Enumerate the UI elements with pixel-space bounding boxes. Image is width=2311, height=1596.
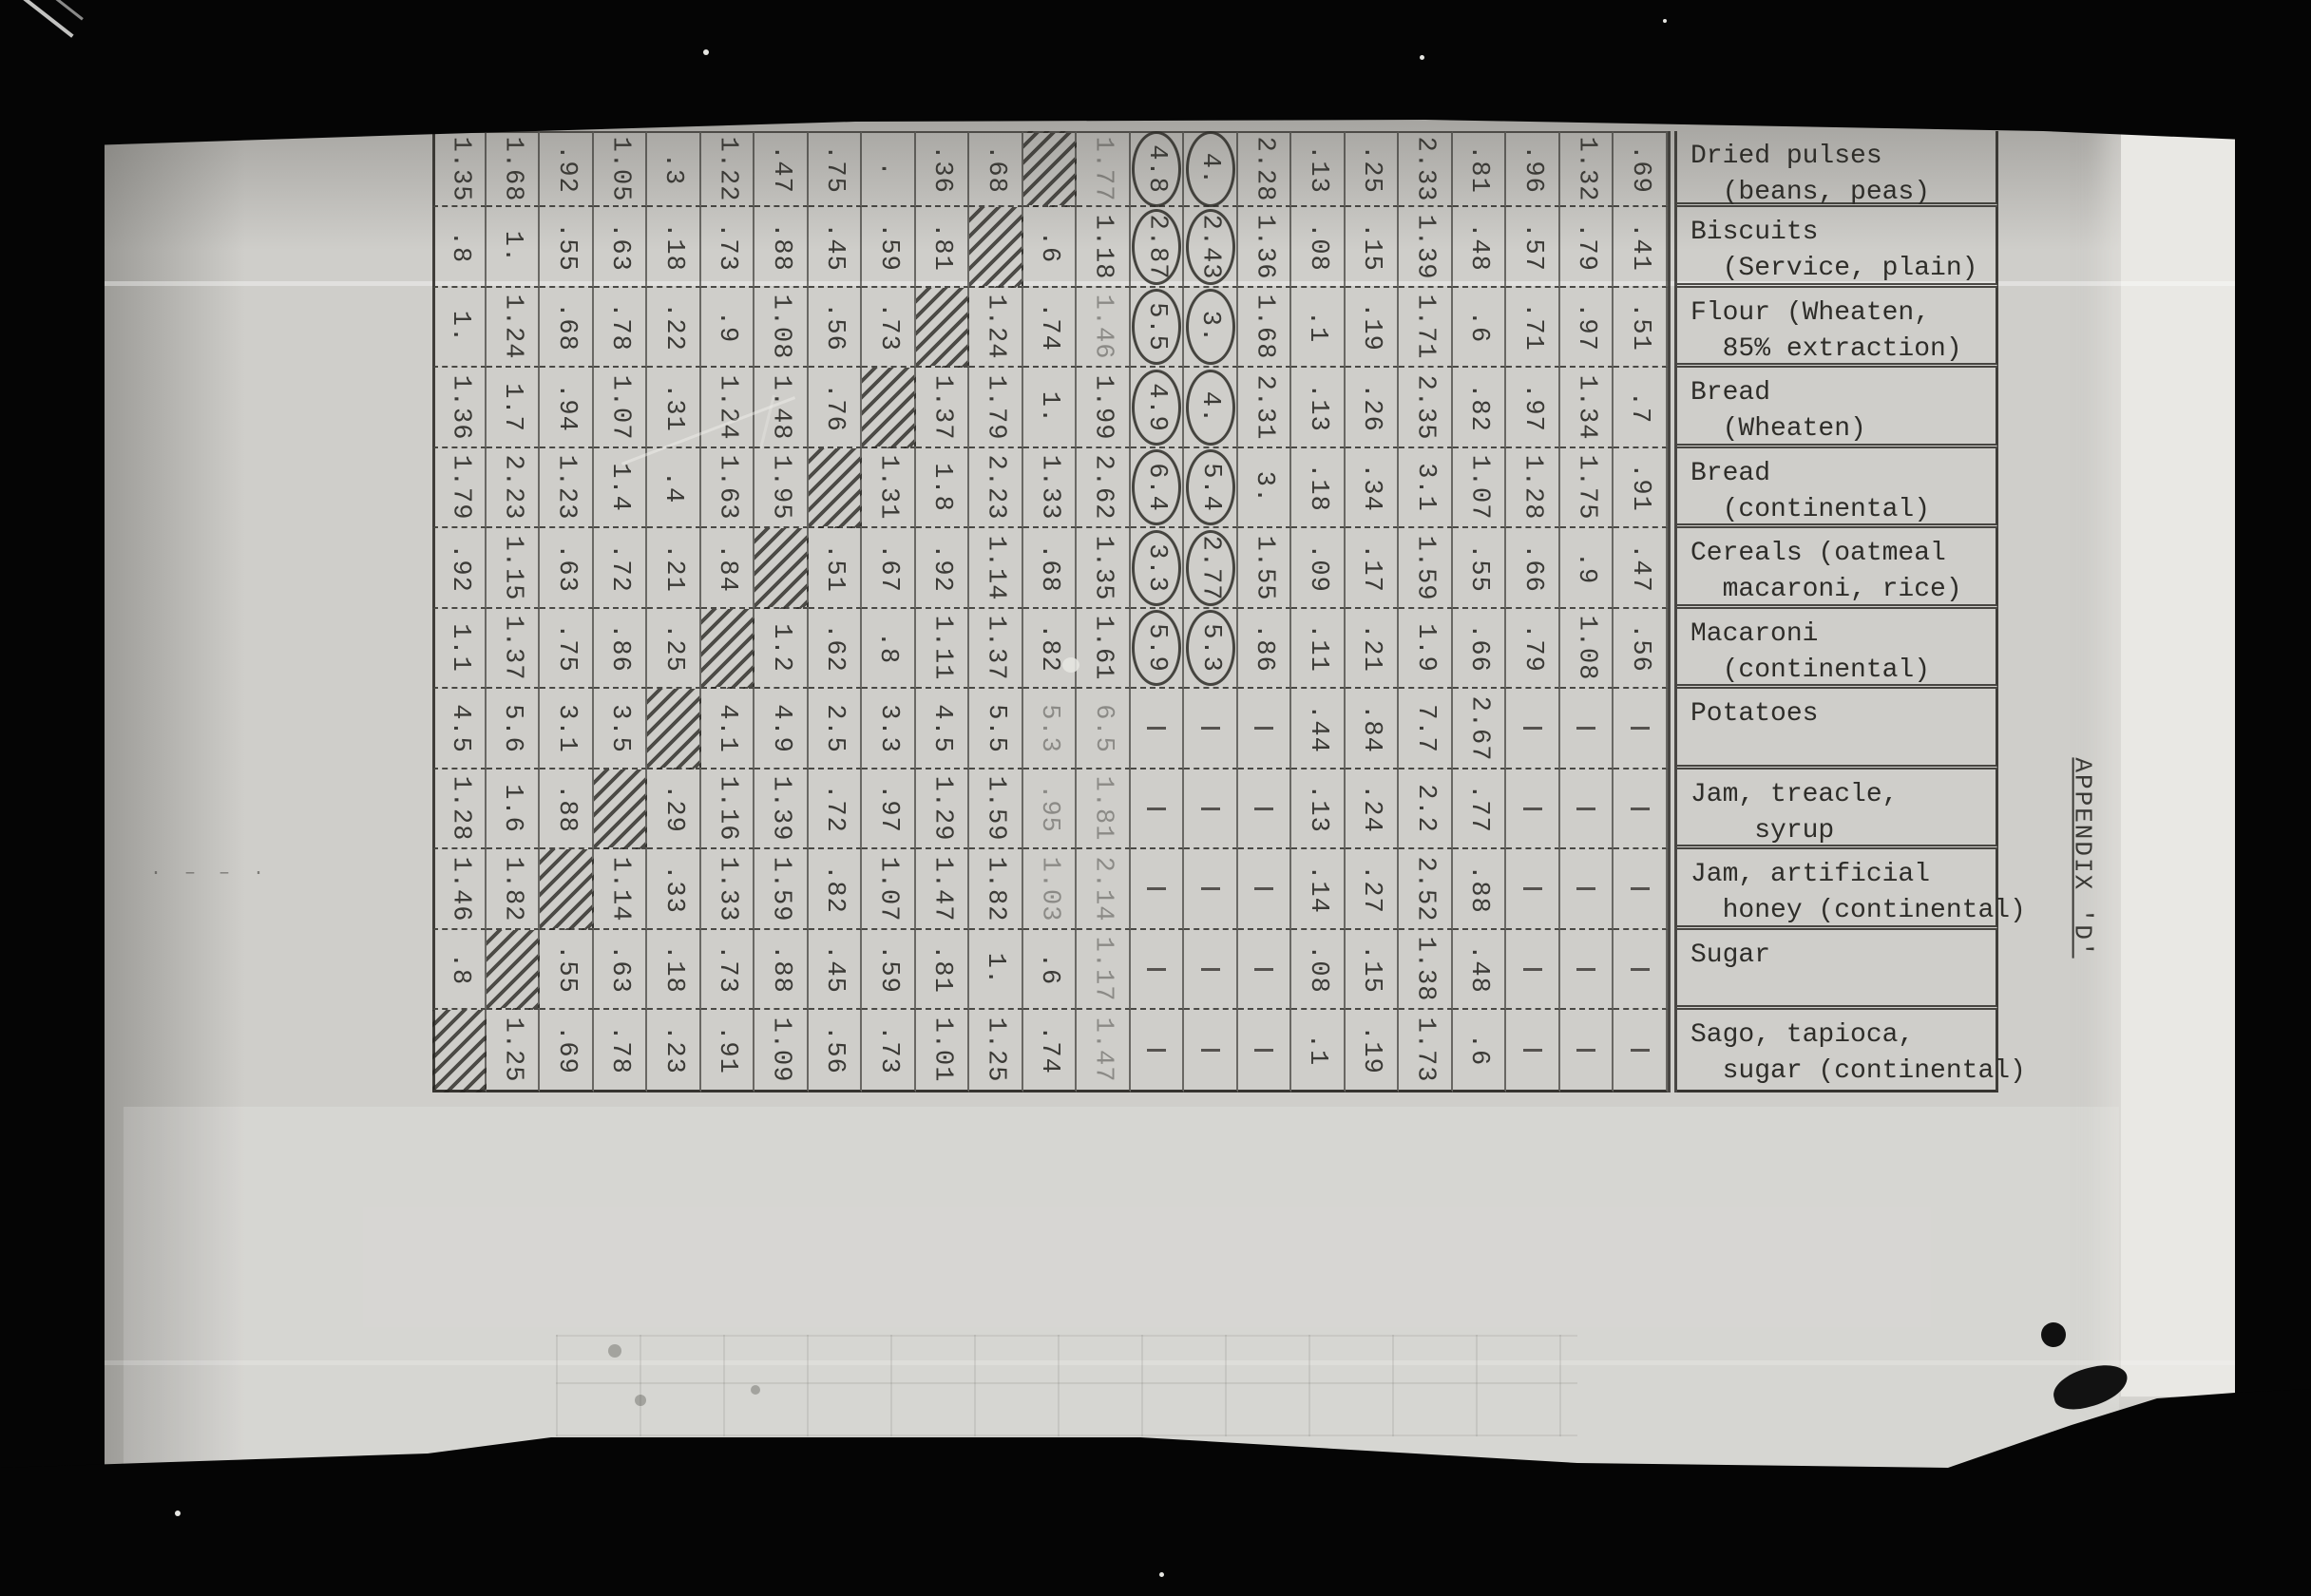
circled-value: 2.43 [1186, 209, 1235, 285]
cell-value: .75 [820, 144, 849, 194]
cell-value: .13 [1303, 383, 1331, 432]
table-cell: .74 [1023, 1010, 1077, 1092]
hatched-cell [862, 368, 916, 448]
cell-value: .48 [1464, 944, 1493, 994]
cell-value: 1. [446, 311, 474, 343]
cell-value: 1.55 [1250, 535, 1278, 600]
table-cell [1614, 849, 1668, 930]
cell-value: 1.2 [766, 623, 794, 673]
table-cell: 1.75 [1560, 448, 1614, 528]
table-cell: .92 [540, 131, 594, 207]
table-cell: .63 [594, 930, 647, 1010]
table-cell: .91 [1614, 448, 1668, 528]
cell-value: .18 [1303, 463, 1331, 512]
cell-value: 2.52 [1411, 856, 1440, 921]
cell-value: 1.99 [1089, 374, 1117, 440]
cell-value: 1.33 [1035, 455, 1063, 521]
table-cell: 1.39 [1399, 207, 1453, 288]
table-cell: 1. [487, 207, 540, 288]
table-cell: 1.33 [701, 849, 754, 930]
dash-mark [1147, 968, 1166, 971]
table-cell: .71 [1506, 288, 1560, 368]
table-cell: .56 [809, 1010, 862, 1092]
cell-value: .92 [551, 144, 580, 194]
cell-value: . [873, 161, 902, 177]
cell-value: .23 [659, 1025, 687, 1074]
row-label: Macaroni (continental) [1677, 609, 1998, 689]
dash-mark [1576, 807, 1595, 810]
table-cell: .24 [1346, 769, 1399, 849]
table-cell: 1.73 [1399, 1010, 1453, 1092]
dash-mark [1201, 968, 1220, 971]
table-cell: .47 [1614, 528, 1668, 609]
table-cell: 1.17 [1077, 930, 1131, 1010]
table-cell: 1.14 [969, 528, 1023, 609]
table-cell: .6 [1023, 207, 1077, 288]
table-cell: .97 [1506, 368, 1560, 448]
cell-value: .84 [1357, 704, 1385, 753]
table-cell: 1.71 [1399, 288, 1453, 368]
table-cell: .45 [809, 930, 862, 1010]
table-cell: .22 [647, 288, 701, 368]
row-label-line2: macaroni, rice) [1690, 572, 1996, 608]
table-cell [1560, 1010, 1614, 1092]
circled-value: 3. [1186, 289, 1235, 365]
table-cell: 1.37 [487, 609, 540, 689]
cell-value: .29 [659, 784, 687, 833]
film-speck [703, 49, 709, 55]
cell-value: .82 [1035, 623, 1063, 673]
circled-value: 2.77 [1186, 530, 1235, 606]
table-cell: .88 [754, 930, 809, 1010]
table-cell: 1.09 [754, 1010, 809, 1092]
row-label-line1: Bread [1690, 375, 1996, 411]
smudge-mark [635, 1395, 646, 1406]
cell-value: .6 [1464, 311, 1493, 343]
hatched-cell [809, 448, 862, 528]
table-cell: 2.62 [1077, 448, 1131, 528]
hatched-cell [432, 1010, 487, 1092]
circled-value: 5.5 [1132, 289, 1181, 365]
table-cell: 1.77 [1077, 131, 1131, 207]
cell-value: .21 [659, 543, 687, 593]
table-cell [1560, 930, 1614, 1010]
row-label-line1: Biscuits [1690, 215, 1996, 251]
table-cell: .56 [809, 288, 862, 368]
table-cell: 1. [969, 930, 1023, 1010]
cell-value: 1.24 [498, 294, 526, 360]
cell-value: 5.5 [981, 704, 1009, 753]
cell-value: .17 [1357, 543, 1385, 593]
cell-value: 2.23 [982, 455, 1010, 521]
dash-mark [1201, 807, 1220, 810]
table-cell: .72 [809, 769, 862, 849]
dash-mark [1523, 1049, 1542, 1052]
hatched-cell [701, 609, 754, 689]
cell-value: 3.3 [1142, 543, 1171, 593]
table-cell: .59 [862, 207, 916, 288]
table-cell: 5.4 [1184, 448, 1238, 528]
table-cell: .18 [647, 207, 701, 288]
cell-value: .88 [551, 784, 580, 833]
table-cell: .95 [1023, 769, 1077, 849]
table-cell: .19 [1346, 288, 1399, 368]
table-cell: .72 [594, 528, 647, 609]
table-cell [1506, 769, 1560, 849]
table-cell: 3.3 [1131, 528, 1184, 609]
table-cell: .69 [1614, 131, 1668, 207]
cell-value: 1.59 [1411, 535, 1440, 600]
cell-value: .74 [1035, 1025, 1063, 1074]
cell-value: .84 [713, 543, 741, 593]
cell-value: .45 [820, 222, 849, 272]
row-label-line1: Jam, artificial [1690, 857, 1996, 893]
cell-value: 1.59 [767, 856, 795, 921]
cell-value: 1.24 [982, 294, 1010, 360]
table-cell: .82 [1023, 609, 1077, 689]
cell-value: 4.8 [1142, 144, 1171, 194]
cell-value: .59 [873, 944, 902, 994]
cell-value: .63 [551, 543, 580, 593]
table-cell: 1.31 [862, 448, 916, 528]
cell-value: .81 [927, 944, 956, 994]
table-cell [1184, 1010, 1238, 1092]
table-cell: .44 [1291, 689, 1346, 769]
dash-mark [1147, 1049, 1166, 1052]
row-label: Biscuits (Service, plain) [1677, 207, 1998, 288]
table-cell: 1.82 [487, 849, 540, 930]
cell-value: .74 [1035, 302, 1063, 351]
cell-value: 2.31 [1250, 374, 1278, 440]
cell-value: .34 [1357, 463, 1385, 512]
table-cell [1614, 1010, 1668, 1092]
dash-mark [1147, 807, 1166, 810]
cell-value: .7 [1626, 390, 1654, 423]
table-cell: 1.37 [969, 609, 1023, 689]
cell-value: 1.39 [767, 776, 795, 842]
table-cell [1560, 849, 1614, 930]
table-cell: .15 [1346, 930, 1399, 1010]
circled-value: 4. [1186, 370, 1235, 446]
table-cell: 1.14 [594, 849, 647, 930]
cell-value: .68 [1035, 543, 1063, 593]
table-cell: .79 [1560, 207, 1614, 288]
table-cell: .26 [1346, 368, 1399, 448]
table-cell: .76 [809, 368, 862, 448]
cell-value: 5.3 [1035, 704, 1063, 753]
cell-value: .25 [659, 623, 687, 673]
cell-value: 2.5 [820, 704, 849, 753]
table-cell [1184, 769, 1238, 849]
cell-value: 2.14 [1089, 856, 1117, 921]
table-cell: 2.14 [1077, 849, 1131, 930]
cell-value: .4 [659, 471, 688, 503]
cell-value: 1.35 [446, 137, 474, 202]
cell-value: .97 [1518, 383, 1546, 432]
cell-value: 1.32 [1572, 137, 1600, 202]
cell-value: 1.61 [1089, 616, 1117, 681]
table-cell: .57 [1506, 207, 1560, 288]
cell-value: .51 [1625, 302, 1653, 351]
table-cell: .17 [1346, 528, 1399, 609]
cell-value: 1.73 [1411, 1017, 1440, 1083]
cell-value: 2.62 [1089, 455, 1117, 521]
cell-value: 1.07 [1464, 455, 1493, 521]
table-cell: .84 [1346, 689, 1399, 769]
cell-value: 2.43 [1196, 214, 1225, 279]
table-cell: 1.16 [701, 769, 754, 849]
table-cell: .88 [540, 769, 594, 849]
table-cell: .1 [1291, 288, 1346, 368]
row-label: Bread (Wheaten) [1677, 368, 1998, 448]
table-cell: 1.39 [754, 769, 809, 849]
cell-value: 4.1 [713, 704, 741, 753]
table-cell: .8 [432, 930, 487, 1010]
cell-value: .33 [659, 864, 687, 914]
table-cell [1131, 849, 1184, 930]
dash-mark [1576, 968, 1595, 971]
table-cell: 4. [1184, 131, 1238, 207]
cell-value: 1.07 [874, 856, 903, 921]
dash-mark [1201, 727, 1220, 730]
row-label: Sugar [1677, 930, 1998, 1010]
table-cell: .45 [809, 207, 862, 288]
table-cell: 1.24 [701, 368, 754, 448]
paper-speck [1062, 657, 1079, 673]
cell-value: 1.46 [446, 856, 474, 921]
cell-value: 2.28 [1250, 137, 1278, 202]
table-cell: 2.23 [969, 448, 1023, 528]
cell-value: 1.37 [498, 616, 526, 681]
table-cell: .48 [1453, 207, 1506, 288]
table-cell: 1.08 [1560, 609, 1614, 689]
table-cell: 2.23 [487, 448, 540, 528]
cell-value: 1.95 [767, 455, 795, 521]
table-cell: 1.47 [916, 849, 969, 930]
cell-value: .92 [927, 543, 956, 593]
table-cell: .69 [540, 1010, 594, 1092]
cell-value: .88 [766, 222, 794, 272]
cell-value: .13 [1303, 144, 1331, 194]
table-cell: 1.35 [1077, 528, 1131, 609]
row-label-line1: Potatoes [1690, 696, 1996, 732]
table-cell: .67 [862, 528, 916, 609]
cell-value: .66 [1464, 623, 1493, 673]
table-cell: .84 [701, 528, 754, 609]
cell-value: 1.08 [767, 294, 795, 360]
table-cell: .13 [1291, 769, 1346, 849]
cell-value: .72 [820, 784, 849, 833]
cell-value: .09 [1303, 543, 1331, 593]
cell-value: 1.37 [927, 374, 956, 440]
dash-mark [1631, 1049, 1650, 1052]
dash-mark [1523, 968, 1542, 971]
table-cell [1238, 1010, 1291, 1092]
dash-mark [1631, 968, 1650, 971]
cell-value: .94 [551, 383, 580, 432]
table-cell: 6.5 [1077, 689, 1131, 769]
table-cell: .97 [862, 769, 916, 849]
table-cell: .1 [1291, 1010, 1346, 1092]
table-cell: 5.5 [969, 689, 1023, 769]
table-cell: 1.7 [487, 368, 540, 448]
cell-value: 1.68 [1250, 294, 1278, 360]
cell-value: 6.4 [1142, 463, 1171, 512]
cell-value: .97 [1572, 302, 1600, 351]
cell-value: .55 [551, 944, 580, 994]
cell-value: 1.36 [446, 374, 474, 440]
cell-value: 1.38 [1411, 937, 1440, 1002]
table-cell [1131, 769, 1184, 849]
table-cell [1131, 689, 1184, 769]
table-cell: .6 [1453, 1010, 1506, 1092]
row-label-line2: (continental) [1690, 492, 1996, 528]
cell-value: .78 [605, 302, 634, 351]
cell-value: .69 [1625, 144, 1653, 194]
table-cell: 1.07 [594, 368, 647, 448]
table-cell: 4. [1184, 368, 1238, 448]
cell-value: .79 [1572, 222, 1600, 272]
cell-value: .41 [1625, 222, 1653, 272]
cell-value: 4.9 [766, 704, 794, 753]
cell-value: 1.24 [713, 374, 741, 440]
table-cell: 1.24 [969, 288, 1023, 368]
table-cell: .18 [1291, 448, 1346, 528]
table-cell: 2.87 [1131, 207, 1184, 288]
cell-value: .55 [1464, 543, 1493, 593]
table-cell: 1.37 [916, 368, 969, 448]
circled-value: 2.87 [1132, 209, 1181, 285]
table-cell: 1.61 [1077, 609, 1131, 689]
table-cell [1238, 769, 1291, 849]
row-label-line1: Dried pulses [1690, 139, 1996, 175]
table-cell: .81 [916, 930, 969, 1010]
cell-value: .25 [1357, 144, 1385, 194]
table-cell: 2.52 [1399, 849, 1453, 930]
cell-value: .21 [1357, 623, 1385, 673]
row-label: Bread (continental) [1677, 448, 1998, 528]
cell-value: 1.34 [1572, 374, 1600, 440]
cell-value: 1.25 [498, 1017, 526, 1083]
table-cell: 5.6 [487, 689, 540, 769]
cell-value: 1.03 [1035, 856, 1063, 921]
dash-mark [1147, 887, 1166, 890]
cell-value: .18 [659, 944, 687, 994]
table-cell: .79 [1506, 609, 1560, 689]
cell-value: .82 [820, 864, 849, 914]
table-cell: .55 [540, 207, 594, 288]
cell-value: .91 [713, 1025, 741, 1074]
row-label-line2: (Wheaten) [1690, 411, 1996, 447]
cell-value: 1.14 [605, 856, 634, 921]
table-cell: 1.01 [916, 1010, 969, 1092]
hatched-cell [754, 528, 809, 609]
table-cell: .47 [754, 131, 809, 207]
cell-value: .9 [1572, 551, 1600, 583]
row-label: Sago, tapioca, sugar (continental) [1677, 1010, 1998, 1092]
dash-mark [1523, 727, 1542, 730]
table-cell: .81 [1453, 131, 1506, 207]
dash-mark [1254, 1049, 1273, 1052]
table-cell: .94 [540, 368, 594, 448]
cell-value: 6.5 [1088, 704, 1117, 753]
cell-value: .1 [1304, 311, 1332, 343]
table-cell: .36 [916, 131, 969, 207]
table-cell: 5.9 [1131, 609, 1184, 689]
cell-value: .45 [820, 944, 849, 994]
table-cell: 1.47 [1077, 1010, 1131, 1092]
cell-value: 1.28 [446, 776, 474, 842]
table-cell: .27 [1346, 849, 1399, 930]
cell-value: 3.1 [551, 704, 580, 753]
cell-value: .6 [1464, 1034, 1493, 1066]
cell-value: .08 [1303, 944, 1331, 994]
table-cell: 2.43 [1184, 207, 1238, 288]
cell-value: .08 [1303, 222, 1331, 272]
cell-value: .72 [605, 543, 634, 593]
table-cell [1506, 930, 1560, 1010]
table-cell: 1.68 [1238, 288, 1291, 368]
cell-value: 1.25 [982, 1017, 1010, 1083]
cell-value: .73 [873, 302, 902, 351]
photographed-document: 1.351.68.921.05.31.22.47.75..36.681.774.… [0, 0, 2311, 1596]
cell-value: 2.33 [1411, 137, 1440, 202]
table-cell: .9 [701, 288, 754, 368]
cell-value: 1.05 [605, 137, 634, 202]
row-label: Dried pulses (beans, peas) [1677, 131, 1998, 207]
table-cell: 1.59 [1399, 528, 1453, 609]
table-cell: 1.05 [594, 131, 647, 207]
table-cell [1238, 930, 1291, 1010]
cell-value: 1.22 [713, 137, 741, 202]
cell-value: .15 [1357, 944, 1385, 994]
ghost-table-bleedthrough [556, 1335, 1577, 1436]
table-cell: .88 [1453, 849, 1506, 930]
table-cell: .77 [1453, 769, 1506, 849]
table-cell: 1.07 [1453, 448, 1506, 528]
table-cell: .73 [701, 207, 754, 288]
table-cell: 4.5 [432, 689, 487, 769]
dash-mark [1201, 1049, 1220, 1052]
table-cell: 4.5 [916, 689, 969, 769]
table-cell: 1.6 [487, 769, 540, 849]
table-cell: 1.03 [1023, 849, 1077, 930]
table-cell: 2.35 [1399, 368, 1453, 448]
cell-value: .15 [1357, 222, 1385, 272]
table-cell: .91 [701, 1010, 754, 1092]
cell-value: 1.39 [1411, 214, 1440, 279]
cell-value: .1 [1304, 1034, 1332, 1066]
table-cell: 4.1 [701, 689, 754, 769]
table-cell: .82 [1453, 368, 1506, 448]
table-cell: 1.46 [432, 849, 487, 930]
dash-mark [1576, 1049, 1595, 1052]
table-cell: 2.33 [1399, 131, 1453, 207]
table-cell: 1.35 [432, 131, 487, 207]
cell-value: 1.16 [713, 776, 741, 842]
table-cell: .63 [540, 528, 594, 609]
table-cell: .13 [1291, 368, 1346, 448]
table-cell: 1.22 [701, 131, 754, 207]
cell-value: 5.3 [1196, 623, 1225, 673]
cell-value: 1.11 [927, 616, 956, 681]
table-cell: 1.99 [1077, 368, 1131, 448]
table-cell: 3.5 [594, 689, 647, 769]
cell-value: .81 [1464, 144, 1493, 194]
table-cell: .73 [701, 930, 754, 1010]
table-cell: 4.9 [754, 689, 809, 769]
cell-value: 1.36 [1250, 214, 1278, 279]
